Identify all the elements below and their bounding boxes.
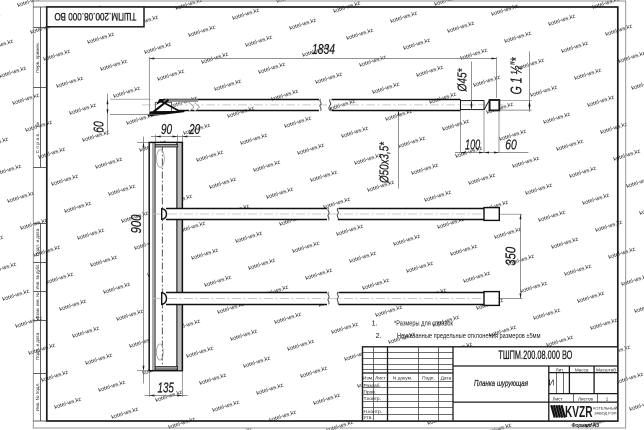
- svg-text:100: 100: [465, 136, 480, 152]
- svg-text:Лист: Лист: [375, 376, 386, 382]
- svg-text:Масса: Масса: [575, 367, 589, 372]
- svg-text:350: 350: [502, 246, 518, 265]
- svg-text:ТШПМ.200.08.000 ВО: ТШПМ.200.08.000 ВО: [498, 348, 572, 362]
- svg-text:ТШПМ.200.08.000 ВО: ТШПМ.200.08.000 ВО: [54, 10, 136, 22]
- svg-text:Подп. и дата: Подп. и дата: [35, 333, 40, 361]
- svg-text:135: 135: [158, 379, 175, 395]
- svg-text:2.: 2.: [376, 331, 382, 340]
- svg-text:60: 60: [90, 121, 106, 133]
- svg-text:Планка шурующая: Планка шурующая: [474, 378, 528, 388]
- svg-text:N докум.: N докум.: [393, 376, 412, 382]
- svg-text:Т.контр.: Т.контр.: [364, 396, 381, 402]
- svg-text:Ø50х3,5*: Ø50х3,5*: [376, 142, 391, 184]
- svg-text:Справ. №: Справ. №: [35, 121, 40, 154]
- svg-text:Инв. № подл.: Инв. № подл.: [35, 383, 40, 412]
- svg-text:Разраб.: Разраб.: [364, 383, 381, 389]
- svg-text:90: 90: [161, 121, 172, 137]
- svg-text:G 1 ½″*: G 1 ½″*: [508, 57, 525, 95]
- svg-text:Лист: Лист: [553, 397, 564, 402]
- svg-text:Масштаб: Масштаб: [596, 367, 616, 372]
- svg-text:1: 1: [606, 397, 609, 402]
- svg-text:20: 20: [188, 121, 200, 137]
- svg-text:Лит.: Лит.: [556, 367, 565, 372]
- svg-text:Н.контр.: Н.контр.: [364, 409, 382, 415]
- svg-text:Формат А3: Формат А3: [572, 423, 600, 429]
- svg-text:Подп. и дата: Подп. и дата: [35, 229, 40, 257]
- svg-text:1.: 1.: [372, 318, 378, 327]
- svg-text:900: 900: [128, 214, 144, 233]
- svg-text:1834: 1834: [312, 41, 335, 57]
- svg-text:Листов: Листов: [578, 397, 593, 402]
- svg-text:Подп.: Подп.: [422, 376, 435, 382]
- svg-text:60: 60: [505, 136, 517, 152]
- svg-text:Взам. инв. №: Взам. инв. №: [35, 292, 40, 318]
- svg-text:KVZR: KVZR: [565, 404, 593, 421]
- svg-text:*Размеры для справок: *Размеры для справок: [394, 318, 454, 327]
- svg-text:Дата: Дата: [441, 376, 452, 382]
- svg-text:Ø45*: Ø45*: [454, 68, 469, 92]
- svg-text:Инв. № дубл.: Инв. № дубл.: [35, 264, 40, 290]
- svg-text:Утв.: Утв.: [364, 415, 373, 421]
- svg-text:Неуказанные предельные отклоне: Неуказанные предельные отклонения размер…: [397, 331, 541, 340]
- svg-text:И: И: [549, 379, 555, 388]
- svg-text:ЗАВОД РЭП: ЗАВОД РЭП: [594, 411, 616, 416]
- svg-text:Изм.: Изм.: [363, 376, 373, 382]
- svg-text:Перв. примен.: Перв. примен.: [35, 42, 40, 73]
- svg-text:Пров.: Пров.: [364, 390, 377, 396]
